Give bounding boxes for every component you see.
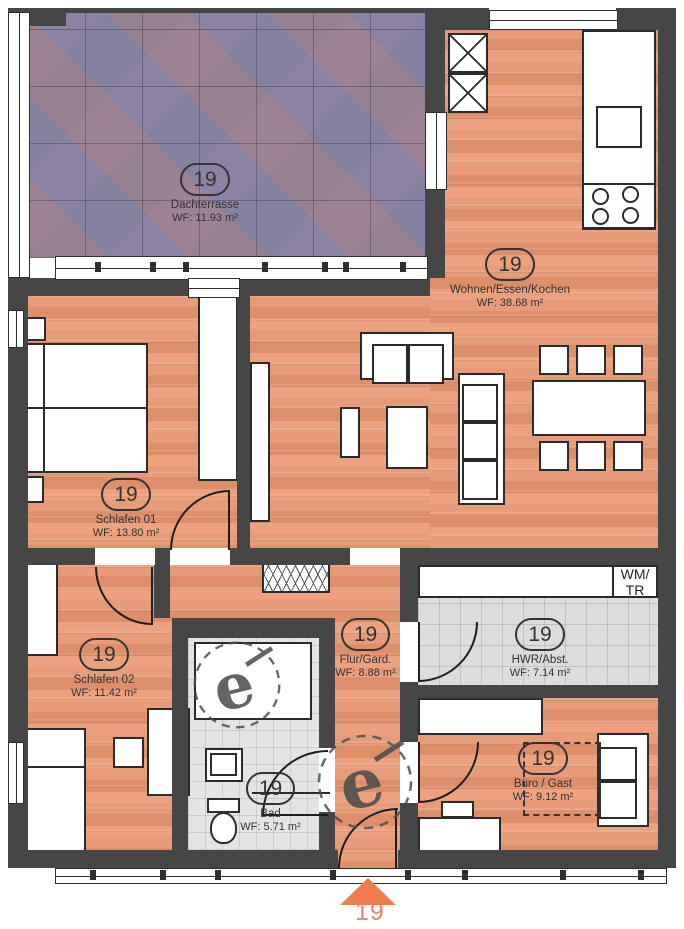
bedroom2-window	[8, 742, 24, 804]
room-label-flur-gard: 19 Flur/Gard. WF: 8.88 m²	[318, 618, 413, 679]
kitchen-tall-cabinet	[448, 33, 488, 73]
dining-chair	[613, 345, 643, 375]
wall	[418, 685, 658, 698]
room-name: Flur/Gard.	[340, 654, 392, 666]
wall	[8, 8, 428, 13]
bed-divider-line	[20, 407, 146, 409]
wall	[230, 548, 350, 565]
burner-icon	[622, 186, 639, 203]
terrace-railing-left	[8, 12, 30, 278]
unit-badge: 19	[180, 163, 229, 196]
unit-badge: 19	[485, 248, 534, 281]
single-bed	[18, 728, 86, 858]
wall	[28, 548, 95, 565]
architect-stamp-icon: e	[315, 732, 415, 832]
wall	[400, 565, 418, 622]
room-name: Bad	[260, 808, 280, 820]
window-post	[462, 870, 468, 880]
unit-badge: 19	[101, 478, 150, 511]
washer-dryer-label: TR	[626, 582, 645, 598]
room-label-buero-gast: 19 Büro / Gast WF: 9.12 m²	[488, 742, 598, 803]
dining-chair	[613, 441, 643, 471]
entrance-unit-number: 19	[355, 898, 385, 927]
washer-dryer-box: WM/ TR	[612, 565, 658, 598]
room-label-dachterrasse: 19 Dachterrasse WF: 11.93 m²	[145, 163, 265, 224]
kitchen-window	[489, 10, 618, 30]
wardrobe	[198, 289, 238, 481]
window-post	[160, 870, 166, 880]
side-table	[340, 407, 360, 458]
utility-door-leaf	[418, 622, 420, 682]
window-post	[330, 870, 336, 880]
sofa-cushion	[408, 344, 444, 384]
wall	[28, 278, 188, 296]
office-shelf	[418, 698, 543, 735]
cooktop	[582, 183, 656, 229]
burner-icon	[592, 188, 609, 205]
coffee-table	[386, 406, 428, 469]
room-area: WF: 9.12 m²	[513, 791, 574, 803]
bed-divider-line	[20, 766, 84, 768]
floor-plan: WM/ TR e e 19 Dachterrasse WF: 11.93 m² …	[0, 0, 684, 929]
terrace-door	[425, 112, 447, 190]
nightstand	[113, 737, 144, 768]
dining-chair	[539, 441, 569, 471]
room-label-schlafen-02: 19 Schlafen 02 WF: 11.42 m²	[44, 638, 164, 699]
room-name: Schlafen 02	[74, 674, 135, 686]
burner-icon	[592, 208, 609, 225]
room-name: Schlafen 01	[96, 514, 157, 526]
office-door-leaf	[418, 742, 420, 803]
room-label-bad: 19 Bad WF: 5.71 m²	[228, 772, 313, 833]
sofa-cushion	[462, 422, 498, 460]
room-area: WF: 11.42 m²	[71, 687, 137, 699]
room-name: Wohnen/Essen/Kochen	[450, 284, 570, 296]
window-post	[322, 262, 328, 272]
desk-chair	[441, 801, 474, 818]
sofa-cushion	[462, 384, 498, 422]
wall	[658, 8, 676, 868]
room-label-schlafen-01: 19 Schlafen 01 WF: 13.80 m²	[66, 478, 186, 539]
svg-text:e: e	[205, 645, 262, 726]
room-area: WF: 11.93 m²	[172, 212, 238, 224]
window-post	[343, 262, 349, 272]
room-name: Dachterrasse	[171, 199, 239, 211]
unit-badge: 19	[518, 742, 567, 775]
room-area: WF: 7.14 m²	[510, 667, 571, 679]
wall	[398, 850, 676, 868]
window-post	[638, 870, 644, 880]
room-name: HWR/Abst.	[512, 654, 569, 666]
window-post	[560, 870, 566, 880]
dining-chair	[576, 345, 606, 375]
sofa-cushion	[372, 344, 408, 384]
room-area: WF: 38.68 m²	[477, 297, 544, 309]
wall	[172, 618, 335, 638]
wall	[425, 8, 489, 30]
window-post	[215, 870, 221, 880]
wall	[155, 548, 170, 565]
sofa-cushion	[599, 781, 637, 819]
dining-table	[532, 380, 646, 436]
kitchen-sink	[596, 106, 642, 148]
architect-stamp-icon: e	[191, 639, 283, 731]
bedroom1-terrace-window	[188, 278, 240, 298]
burner-icon	[622, 207, 639, 224]
wall	[237, 288, 250, 548]
sofa-cushion	[599, 747, 637, 781]
wall	[172, 638, 188, 850]
room-area: WF: 13.80 m²	[93, 527, 160, 539]
bedroom1-window	[8, 310, 24, 348]
window-post	[90, 870, 96, 880]
window-post	[150, 262, 156, 272]
room-label-hwr-abst: 19 HWR/Abst. WF: 7.14 m²	[490, 618, 590, 679]
room-name: Büro / Gast	[514, 778, 572, 790]
dining-chair	[576, 441, 606, 471]
window-post	[183, 262, 189, 272]
sofa-cushion	[462, 460, 498, 500]
window-post	[400, 262, 406, 272]
unit-badge: 19	[515, 618, 564, 651]
wall	[238, 278, 430, 296]
bedroom2-door-leaf	[151, 567, 153, 625]
tv-sideboard	[250, 362, 270, 522]
dining-chair	[539, 345, 569, 375]
unit-badge: 19	[246, 772, 295, 805]
room-area: WF: 8.88 m²	[335, 667, 396, 679]
unit-badge: 19	[341, 618, 390, 651]
room-area: WF: 5.71 m²	[240, 821, 301, 833]
wall	[8, 850, 338, 868]
washer-dryer-label: WM/	[621, 566, 650, 582]
unit-badge: 19	[79, 638, 128, 671]
kitchen-tall-cabinet	[448, 73, 488, 113]
wall	[154, 565, 170, 618]
bedroom1-door-leaf	[228, 490, 230, 550]
terrace-window-band	[55, 256, 428, 280]
room-label-wohnen-essen-kochen: 19 Wohnen/Essen/Kochen WF: 38.68 m²	[440, 248, 580, 309]
wall	[400, 548, 658, 565]
wall	[425, 30, 445, 112]
window-post	[262, 262, 268, 272]
window-post	[405, 870, 411, 880]
window-post	[95, 262, 101, 272]
